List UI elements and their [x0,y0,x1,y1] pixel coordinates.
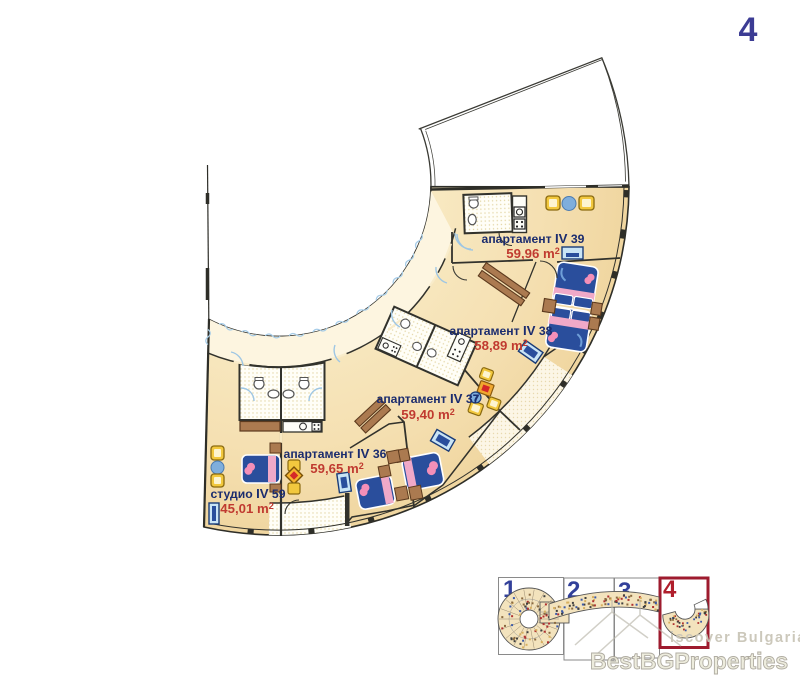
svg-text:апартамент IV 37: апартамент IV 37 [377,391,480,406]
svg-text:59,65 m2: 59,65 m2 [310,461,363,476]
svg-text:4: 4 [663,576,677,603]
svg-text:58,89 m2: 58,89 m2 [474,338,527,353]
svg-text:4: 4 [739,11,758,49]
svg-text:студио IV 59: студио IV 59 [210,486,285,501]
svg-text:апартамент IV 36: апартамент IV 36 [284,446,387,461]
svg-text:iscover Bulgaria: iscover Bulgaria [670,630,800,646]
svg-text:59,40 m2: 59,40 m2 [401,407,454,422]
svg-text:апартамент IV 39: апартамент IV 39 [482,231,585,246]
svg-text:апартамент IV 38: апартамент IV 38 [450,323,553,338]
svg-text:BestBGProperties: BestBGProperties [590,648,788,674]
svg-text:59,96 m2: 59,96 m2 [506,246,559,261]
svg-text:45,01 m2: 45,01 m2 [220,501,273,516]
